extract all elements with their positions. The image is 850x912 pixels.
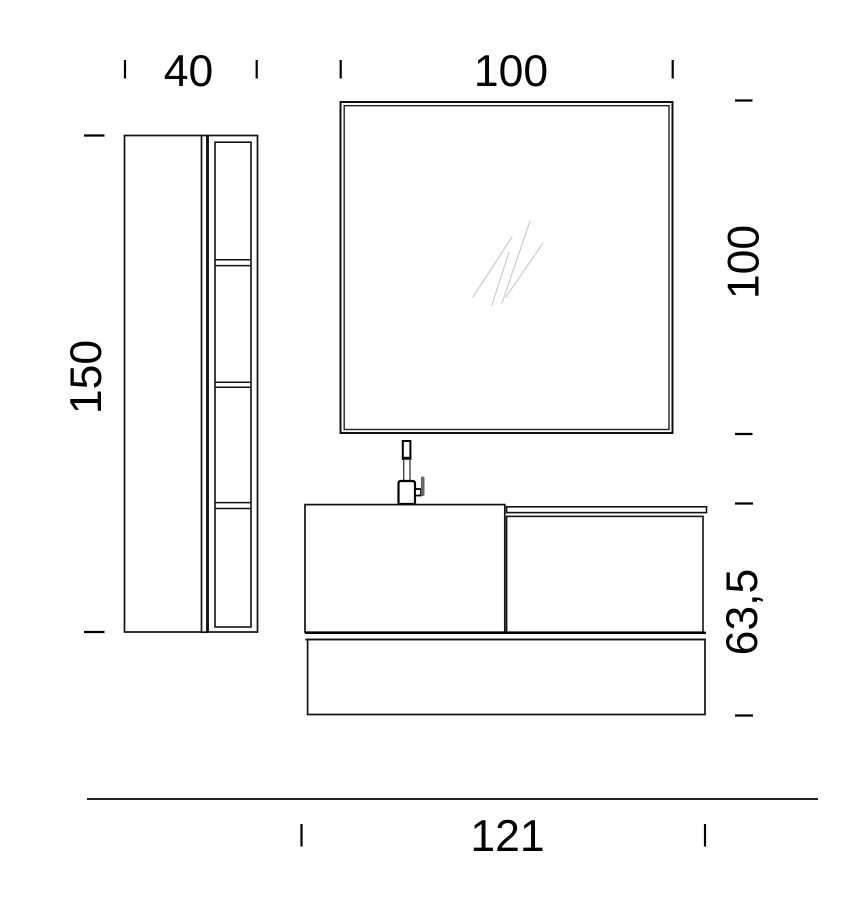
svg-text:63,5: 63,5 — [718, 569, 767, 656]
svg-text:121: 121 — [470, 812, 544, 861]
svg-text:100: 100 — [720, 225, 769, 299]
svg-text:100: 100 — [474, 47, 548, 96]
svg-text:40: 40 — [164, 47, 214, 96]
svg-text:150: 150 — [62, 340, 111, 414]
